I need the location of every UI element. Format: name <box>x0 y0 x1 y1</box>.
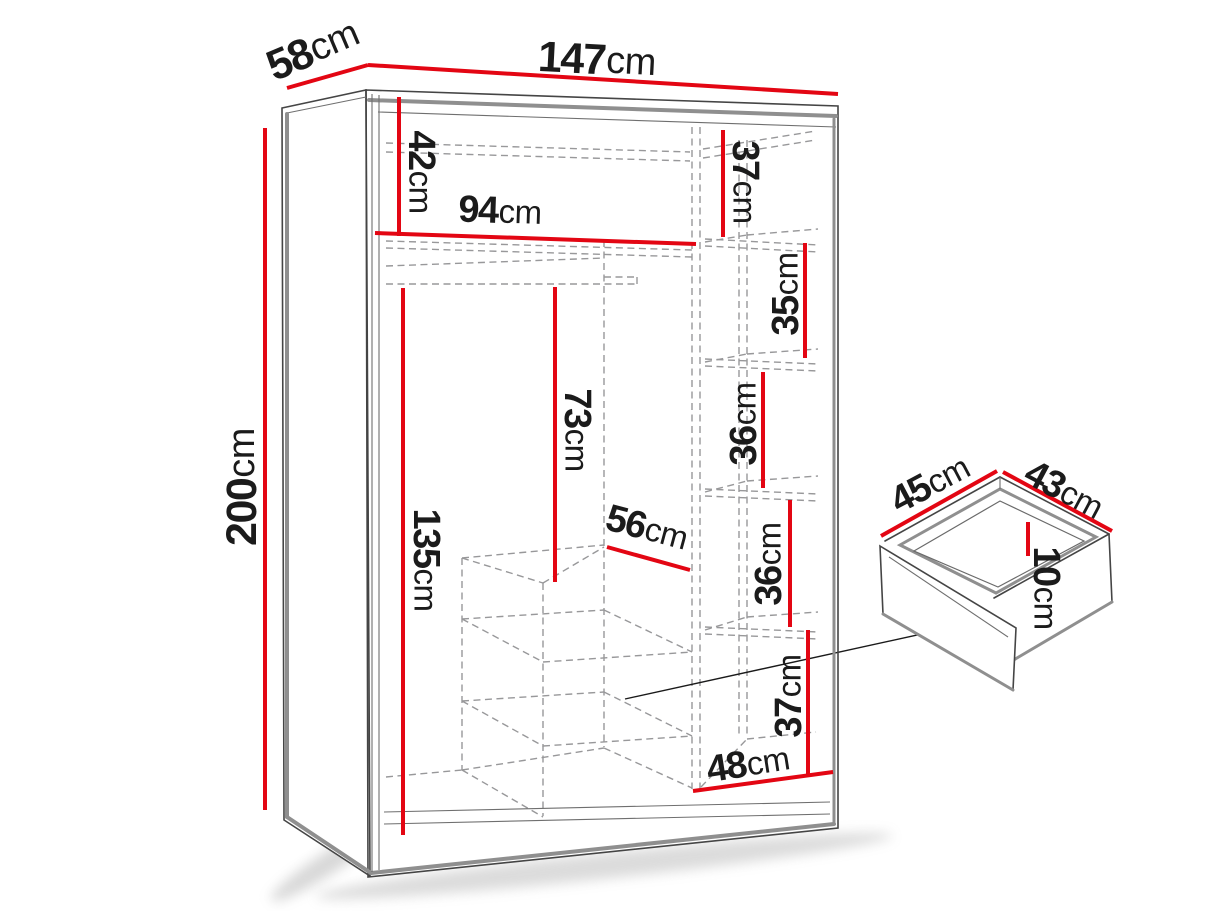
wardrobe-dimension-diagram: 58cm 147cm 200cm 42cm 94cm 37cm 35cm 36c… <box>0 0 1214 911</box>
dim-shelf3-label: 36cm <box>723 382 765 465</box>
dim-drawer-height-label: 10cm <box>1025 546 1067 629</box>
dim-shelf5-label: 37cm <box>768 654 810 737</box>
dim-shelf1-label: 37cm <box>724 140 766 223</box>
diagram-canvas: 58cm 147cm 200cm 42cm 94cm 37cm 35cm 36c… <box>0 0 1214 911</box>
dim-depth-label: 58cm <box>260 9 367 90</box>
dim-left-width-label: 94cm <box>458 189 543 234</box>
dim-width-label: 147cm <box>537 33 657 87</box>
dim-height-label: 200cm <box>218 428 266 546</box>
dim-top-left-height-label: 42cm <box>400 130 442 213</box>
dim-middle-height-label: 73cm <box>556 388 598 471</box>
dim-hanging-height-label: 135cm <box>405 509 447 612</box>
dim-shelf4-label: 36cm <box>748 522 790 605</box>
dim-shelf2-label: 35cm <box>765 252 807 335</box>
